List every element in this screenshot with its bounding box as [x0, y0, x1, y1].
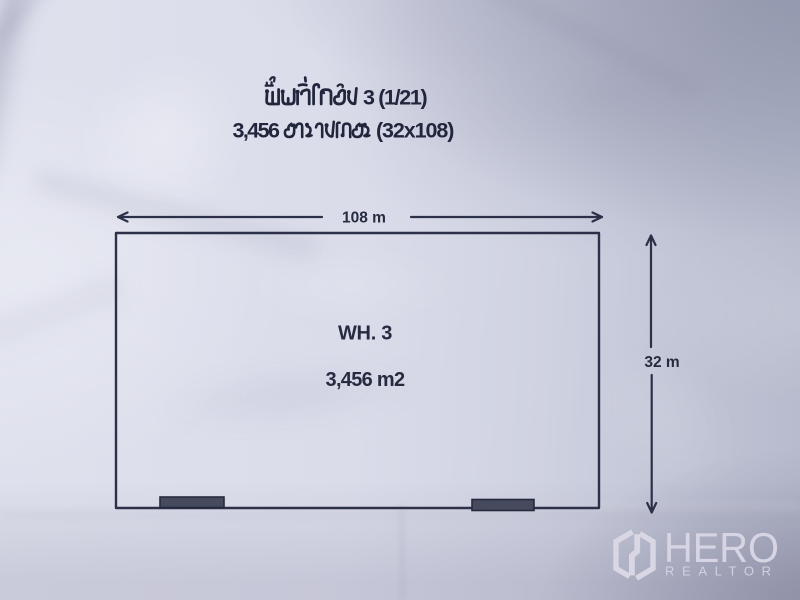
svg-text:32 m: 32 m: [644, 354, 679, 371]
svg-text:(32x108): (32x108): [376, 119, 454, 143]
svg-text:3,456: 3,456: [233, 119, 280, 143]
svg-text:3 (1/21): 3 (1/21): [363, 86, 427, 110]
svg-text:108 m: 108 m: [342, 210, 386, 227]
svg-text:3,456 m2: 3,456 m2: [326, 369, 405, 391]
svg-text:WH. 3: WH. 3: [338, 323, 392, 345]
